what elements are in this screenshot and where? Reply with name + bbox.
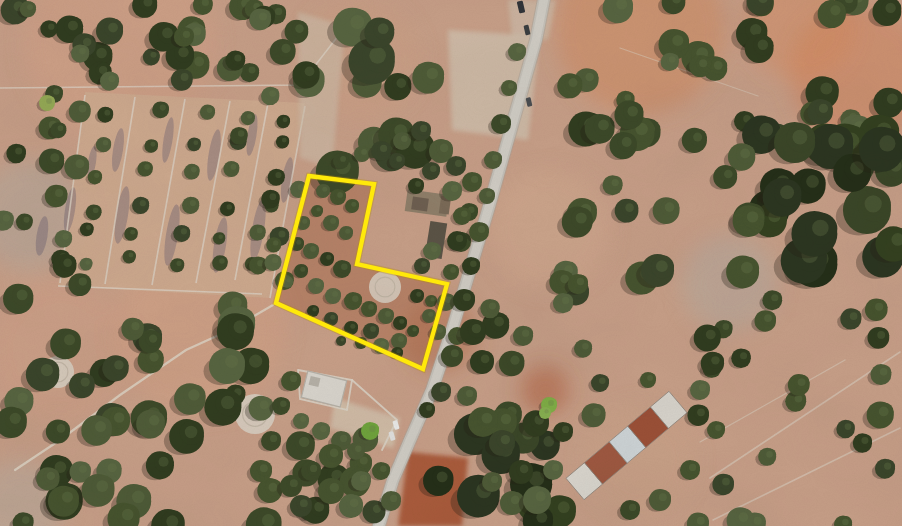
aerial-map-view[interactable] [0,0,902,526]
photo-grain [0,0,902,526]
satellite-image [0,0,902,526]
